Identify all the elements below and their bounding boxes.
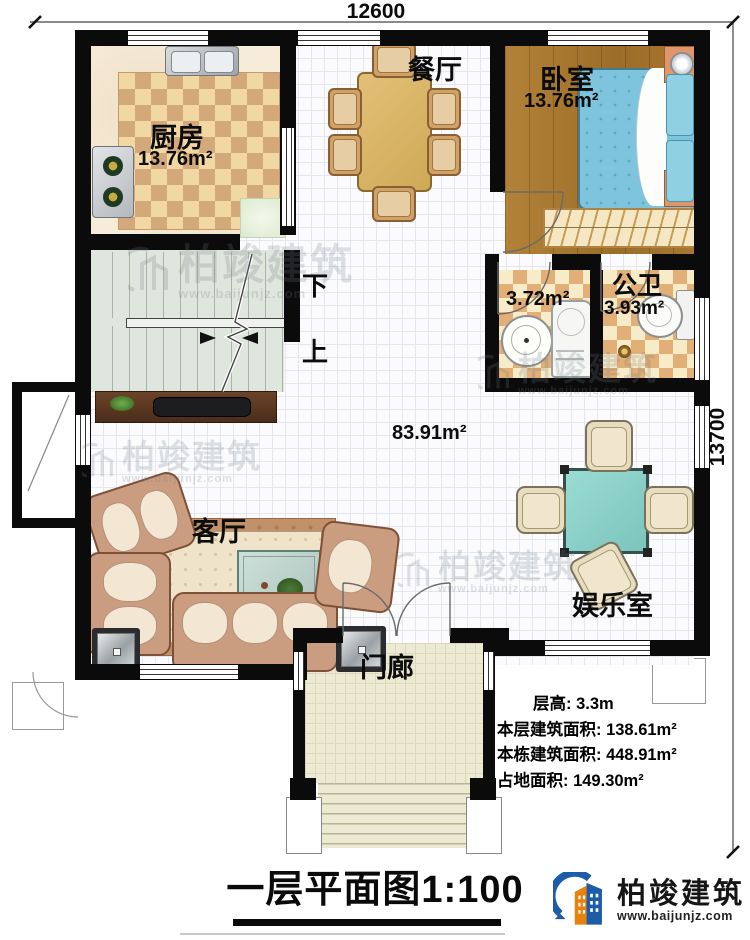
wall-bath-partition <box>590 270 603 392</box>
stat-building-area: 本栋建筑面积: 448.91m² <box>497 743 723 769</box>
room-area-bath-public: 3.93m² <box>604 298 664 320</box>
armchair-right <box>313 520 401 615</box>
porch-post-base-right <box>466 797 502 854</box>
tv <box>153 397 251 417</box>
brand-logo-icon <box>553 872 611 930</box>
stairs-rail <box>126 318 296 328</box>
washing-machine <box>551 300 593 378</box>
bed-pillow <box>666 140 694 202</box>
dining-table <box>357 72 432 192</box>
room-label-living: 客厅 <box>192 510 246 549</box>
wall-bath-top-b <box>552 254 601 270</box>
mahjong-table <box>563 468 649 554</box>
game-chair <box>585 420 633 472</box>
wall-stairs-right <box>284 250 300 342</box>
porch-steps <box>318 783 472 848</box>
stairs-up-label: 上 <box>302 332 328 369</box>
window <box>545 641 650 655</box>
window <box>484 652 494 690</box>
room-area-bath-small: 3.72m² <box>506 288 569 311</box>
room-area-bedroom: 13.76m² <box>524 90 599 113</box>
dimension-width: 12600 <box>331 0 421 24</box>
dimension-height: 13700 <box>706 382 730 492</box>
dining-chair <box>328 134 362 176</box>
room-label-porch: 门廊 <box>360 646 414 685</box>
stove <box>92 146 134 218</box>
title-underline <box>233 919 501 926</box>
bed-pillow <box>666 74 694 136</box>
window <box>695 298 709 380</box>
floor-drain <box>618 345 631 358</box>
room-label-bath-public: 公卫 <box>612 266 662 302</box>
page-title: 一层平面图 <box>226 869 421 911</box>
game-chair <box>644 486 694 534</box>
dining-chair <box>328 88 362 130</box>
plant <box>110 396 134 411</box>
dining-chair <box>372 186 416 222</box>
wall-bath-left <box>485 254 499 392</box>
stairs-upper-flight <box>112 252 284 318</box>
window <box>294 652 304 690</box>
bed-duvet <box>636 68 667 206</box>
stat-footprint-area: 占地面积: 149.30m² <box>497 769 723 795</box>
washbasin <box>501 315 553 367</box>
window <box>140 665 238 679</box>
porch-post-base-left <box>286 797 322 854</box>
brand-url: www.baijunjz.com <box>617 909 745 923</box>
page-scale: 1:100 <box>421 869 523 911</box>
stairs-lower-flight <box>112 326 284 392</box>
brand-logo: 柏竣建筑 www.baijunjz.com <box>553 872 745 930</box>
dining-chair <box>427 134 461 176</box>
room-label-entertainment: 娱乐室 <box>572 584 653 623</box>
wall-bath-bottom <box>485 378 710 392</box>
window <box>282 128 294 226</box>
footing-left <box>12 682 64 730</box>
window <box>298 31 380 45</box>
brand-name: 柏竣建筑 <box>617 879 745 909</box>
wall-left <box>75 30 91 680</box>
kitchen-sink <box>165 46 239 76</box>
floor-plan-canvas: 12600 13700 <box>0 0 750 940</box>
stairs-down-label: 下 <box>302 266 328 303</box>
wall-porch-conn-right <box>495 628 509 656</box>
room-area-hall: 83.91m² <box>392 422 467 445</box>
room-label-dining: 餐厅 <box>408 48 462 87</box>
stat-floor-height: 层高: 3.3m <box>497 692 723 718</box>
dining-chair <box>427 88 461 130</box>
window <box>548 31 648 45</box>
wardrobe <box>543 208 698 248</box>
stats-block: 层高: 3.3m 本层建筑面积: 138.61m² 本栋建筑面积: 448.91… <box>497 692 723 794</box>
wall-bedroom-left <box>490 45 505 192</box>
stat-floor-area: 本层建筑面积: 138.61m² <box>497 718 723 744</box>
title-underline-thin <box>180 933 505 935</box>
game-chair <box>516 486 566 534</box>
window <box>128 31 208 45</box>
window <box>76 415 90 465</box>
room-area-kitchen: 13.76m² <box>138 148 213 171</box>
wall-kitchen-bottom <box>90 234 240 250</box>
